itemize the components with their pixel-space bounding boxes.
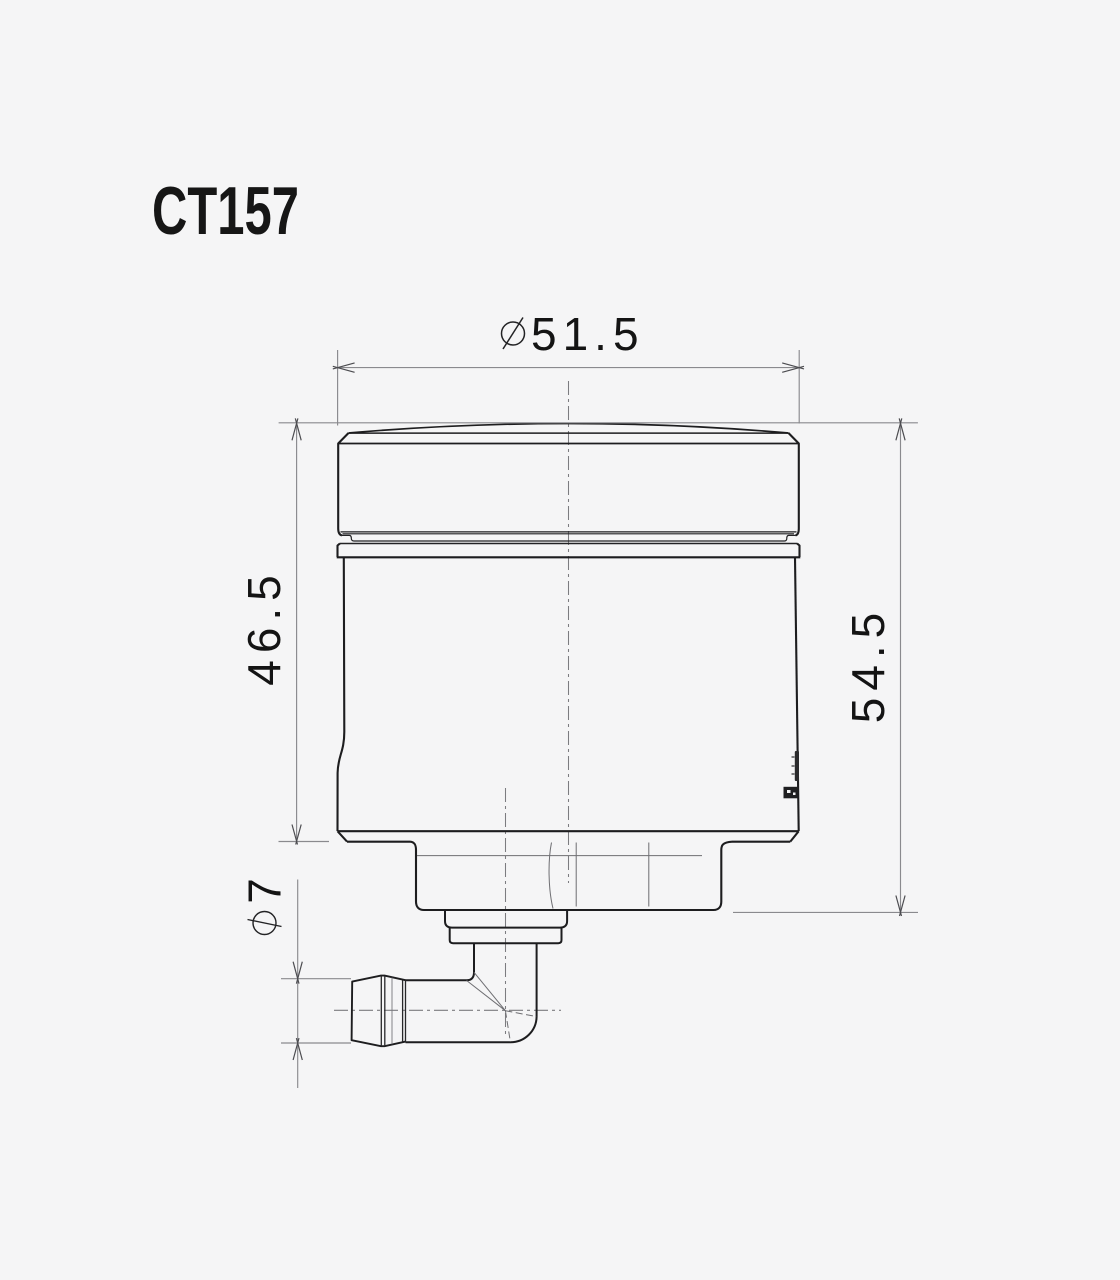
svg-text:54.5: 54.5 xyxy=(842,606,894,724)
svg-text:7: 7 xyxy=(239,878,291,904)
svg-text:51.5: 51.5 xyxy=(531,308,645,360)
svg-text:46.5: 46.5 xyxy=(238,568,290,686)
svg-text:CT157: CT157 xyxy=(152,172,299,249)
